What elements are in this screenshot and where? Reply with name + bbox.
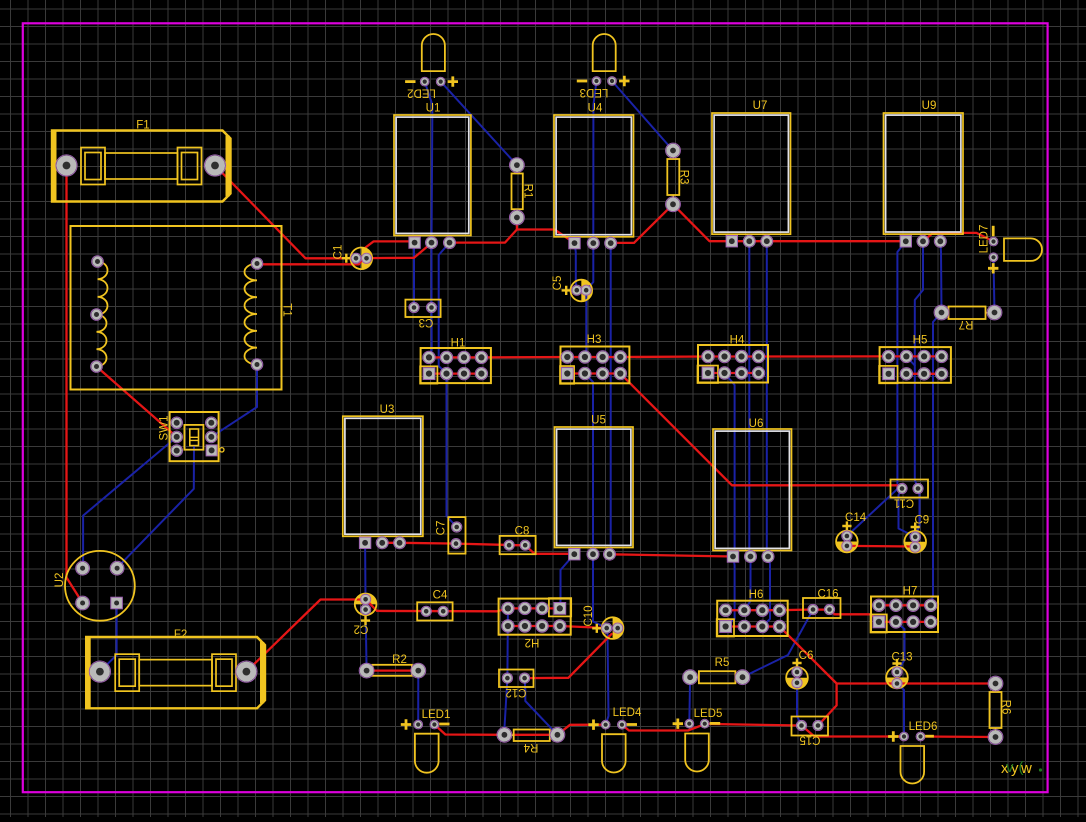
svg-text:T1: T1: [281, 303, 293, 316]
svg-text:H2: H2: [525, 636, 540, 648]
svg-text:U6: U6: [749, 418, 764, 430]
svg-text:LED1: LED1: [422, 709, 451, 721]
svg-text:v(: v(: [1006, 759, 1029, 776]
svg-text:U4: U4: [588, 103, 603, 115]
svg-text:R7: R7: [959, 318, 974, 330]
svg-text:R2: R2: [392, 654, 407, 666]
svg-text:C3: C3: [419, 316, 434, 328]
svg-text:LED5: LED5: [694, 708, 723, 720]
svg-text:LED3: LED3: [580, 86, 609, 98]
svg-text:H4: H4: [730, 335, 745, 347]
svg-text:LED2: LED2: [407, 87, 436, 99]
svg-text:C9: C9: [914, 515, 929, 527]
svg-text:C10: C10: [583, 605, 595, 626]
svg-text:C12: C12: [505, 686, 526, 698]
svg-text:C8: C8: [515, 526, 530, 538]
svg-text:R3: R3: [678, 170, 690, 185]
svg-text:H3: H3: [587, 334, 602, 346]
svg-text:C16: C16: [817, 589, 838, 601]
svg-text:F2: F2: [174, 629, 187, 641]
svg-text:R1: R1: [522, 184, 534, 199]
svg-text:H7: H7: [903, 586, 918, 598]
svg-text:SW1: SW1: [159, 416, 171, 441]
svg-text:LED4: LED4: [613, 707, 642, 719]
svg-text:C14: C14: [845, 512, 867, 524]
svg-text:C15: C15: [799, 734, 820, 746]
svg-text:U9: U9: [922, 100, 937, 112]
svg-text:LED6: LED6: [909, 721, 938, 733]
svg-text:U2: U2: [54, 573, 66, 588]
svg-text:C5: C5: [552, 276, 564, 291]
svg-text:C11: C11: [894, 497, 914, 509]
svg-text:C13: C13: [891, 652, 912, 664]
svg-text:U7: U7: [753, 100, 768, 112]
svg-text:C2: C2: [354, 623, 369, 635]
svg-text:C4: C4: [433, 590, 448, 602]
svg-text:U5: U5: [591, 415, 606, 427]
svg-text:U3: U3: [380, 404, 395, 416]
svg-text:C1: C1: [333, 245, 345, 260]
svg-text:U1: U1: [426, 103, 441, 115]
svg-text:H5: H5: [913, 335, 928, 347]
svg-text:R4: R4: [523, 741, 538, 753]
svg-text:LED7: LED7: [979, 225, 991, 254]
svg-text:R5: R5: [715, 657, 730, 669]
svg-text:C7: C7: [436, 521, 448, 536]
svg-text:H6: H6: [749, 589, 764, 601]
svg-text:H1: H1: [451, 338, 466, 350]
svg-text:C6: C6: [799, 650, 814, 662]
svg-text:F1: F1: [136, 120, 149, 132]
svg-text:R6: R6: [1000, 700, 1012, 715]
